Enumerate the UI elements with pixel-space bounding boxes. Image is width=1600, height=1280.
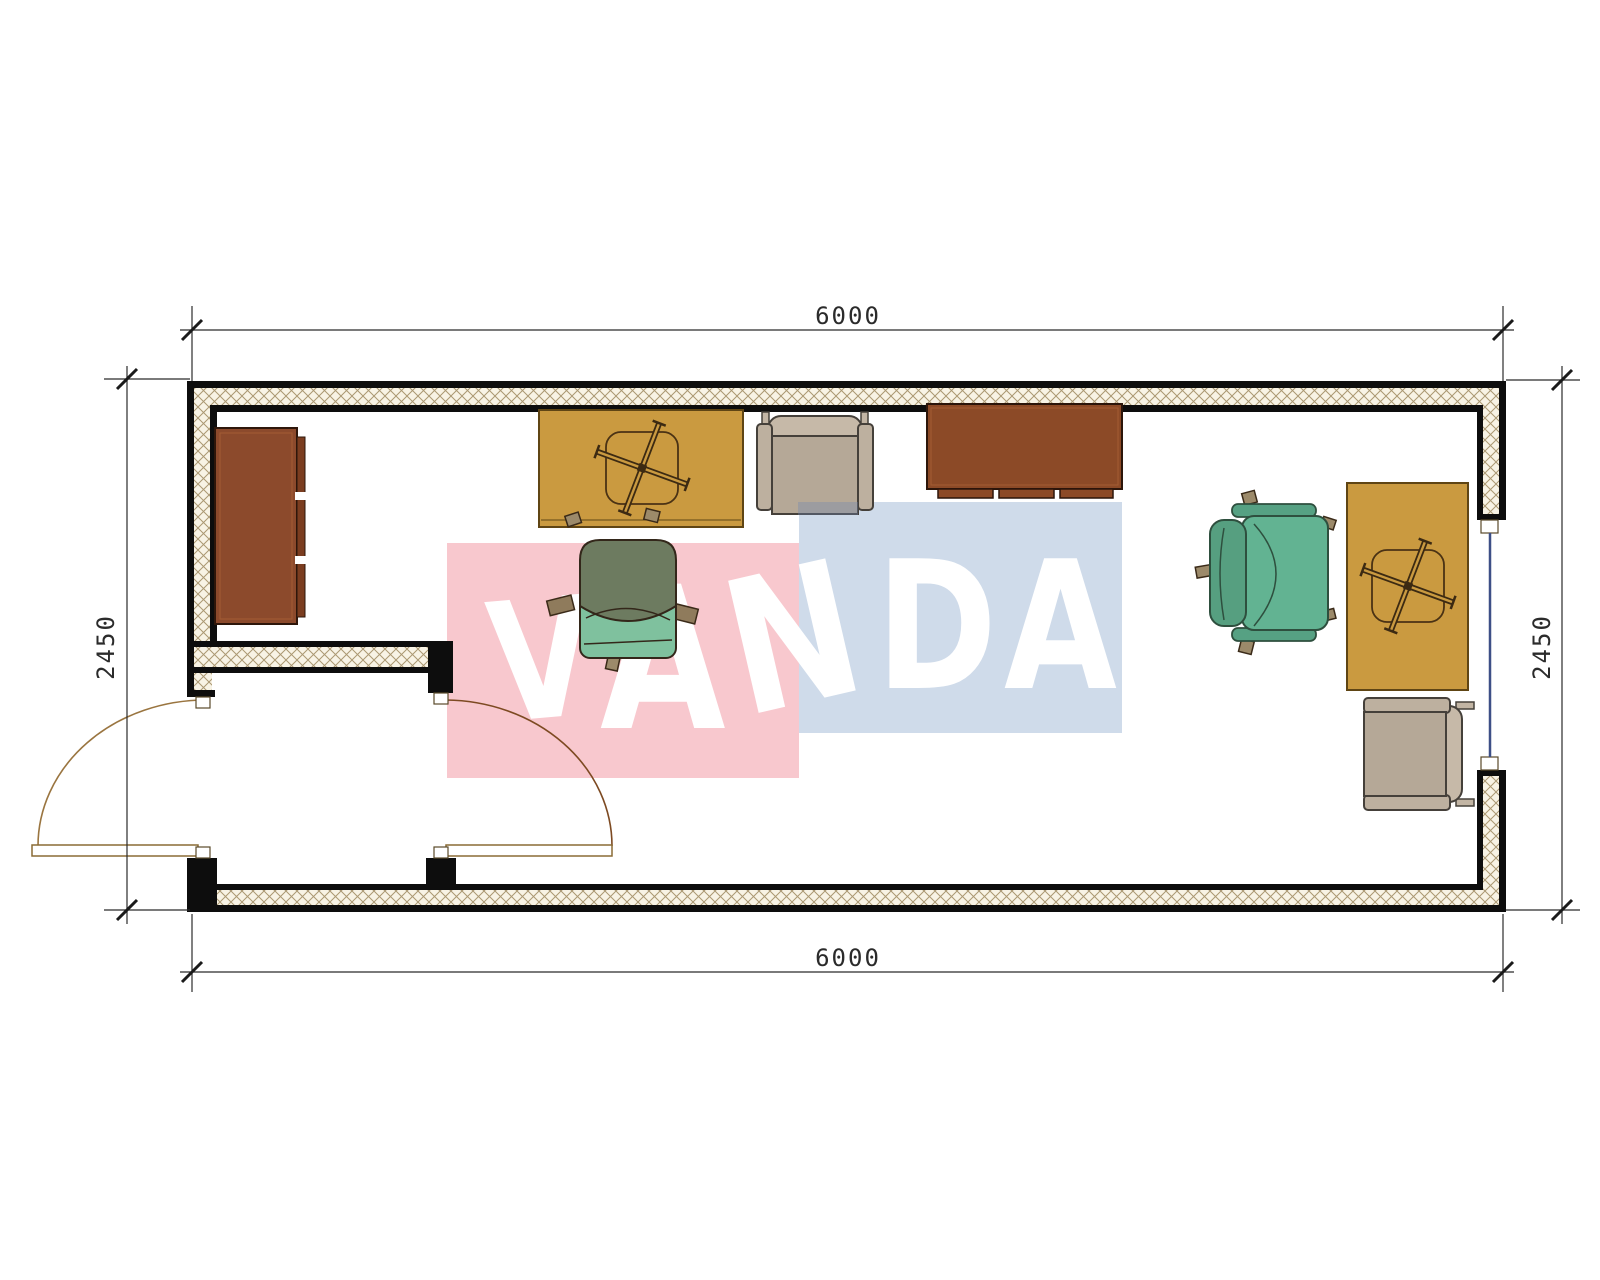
bottom-wall-outer-line — [187, 905, 1506, 912]
door-swing-arc-left — [38, 700, 206, 846]
armchair-right-armrest-bottom — [1364, 795, 1450, 810]
armchair-top — [757, 412, 873, 514]
cabinet — [215, 428, 307, 624]
office-chair-left-caster-2 — [644, 508, 660, 522]
table-brown — [927, 404, 1122, 498]
porch-wall-bottom-line — [192, 667, 428, 673]
floor-plan-drawing: V A N D A — [0, 0, 1600, 1280]
armchair-right-post-bottom — [1456, 799, 1474, 806]
right-wall-upper-outer-line — [1499, 381, 1506, 520]
dim-value-top: 6000 — [815, 302, 881, 330]
cabinet-handle-gap-1 — [295, 492, 307, 500]
window-frame-bottom — [1481, 757, 1498, 770]
watermark-letter-d: D — [876, 524, 997, 731]
door-leaf-left — [32, 845, 198, 856]
table-brown-foot-3 — [1060, 489, 1113, 498]
door-jamb-stub-top-left — [196, 697, 210, 708]
armchair-top-armrest-left — [757, 424, 772, 510]
dim-value-bottom: 6000 — [815, 944, 881, 972]
door-jamb-stub-bottom-left — [196, 847, 210, 858]
window-top-cap — [1477, 514, 1506, 520]
porch-wall-hatch — [192, 647, 430, 667]
porch-wall-top-line — [192, 641, 453, 647]
dim-value-left: 2450 — [92, 614, 120, 680]
top-wall-inner-line — [210, 405, 1480, 412]
desk-right — [1347, 483, 1468, 690]
door-jamb-stub-top-right — [434, 693, 448, 704]
armchair-right-post-top — [1456, 702, 1474, 709]
right-wall-upper-inner-line — [1477, 405, 1483, 514]
watermark-tint-on-armchair — [798, 502, 858, 515]
floor-plan-canvas: V A N D A — [0, 0, 1600, 1280]
cabinet-handle-gap-2 — [295, 556, 307, 564]
top-wall-hatch — [192, 388, 1500, 405]
left-wall-end-cap — [187, 690, 215, 697]
watermark-letter-a2: A — [1004, 524, 1117, 731]
porch-wall-end-jamb — [428, 641, 453, 693]
top-wall-outer-line — [187, 381, 1506, 388]
dim-value-right: 2450 — [1528, 614, 1556, 680]
armchair-right-seat — [1364, 712, 1446, 796]
window-frame-top — [1481, 520, 1498, 533]
left-wall-outer-line — [187, 381, 194, 697]
table-brown-foot-2 — [999, 489, 1054, 498]
watermark: V A N D A — [447, 502, 1122, 778]
door-pier-block — [426, 858, 456, 890]
armchair-right-armrest-top — [1364, 698, 1450, 713]
cabinet-body — [215, 428, 297, 624]
cabinet-front-edge — [297, 437, 305, 617]
table-brown-top — [927, 404, 1122, 489]
right-wall-lower-inner-line — [1477, 776, 1483, 890]
office-chair-right — [1195, 490, 1336, 654]
office-chair-right-seat — [1242, 516, 1328, 630]
table-brown-foot-1 — [938, 489, 993, 498]
office-chair-right-back — [1210, 520, 1246, 626]
right-wall-lower-outer-line — [1499, 776, 1506, 912]
window — [1481, 520, 1498, 770]
window-bottom-cap — [1477, 770, 1506, 776]
bottom-wall-inner-line — [212, 884, 1478, 890]
armchair-top-armrest-right — [858, 424, 873, 510]
bottom-wall-hatch — [192, 890, 1503, 907]
desk-top — [539, 410, 743, 527]
armchair-right — [1364, 698, 1474, 810]
bottom-wall-left-end-block — [187, 858, 217, 912]
door-jamb-stub-bottom-right — [434, 847, 448, 858]
door-leaf-right — [446, 845, 612, 856]
